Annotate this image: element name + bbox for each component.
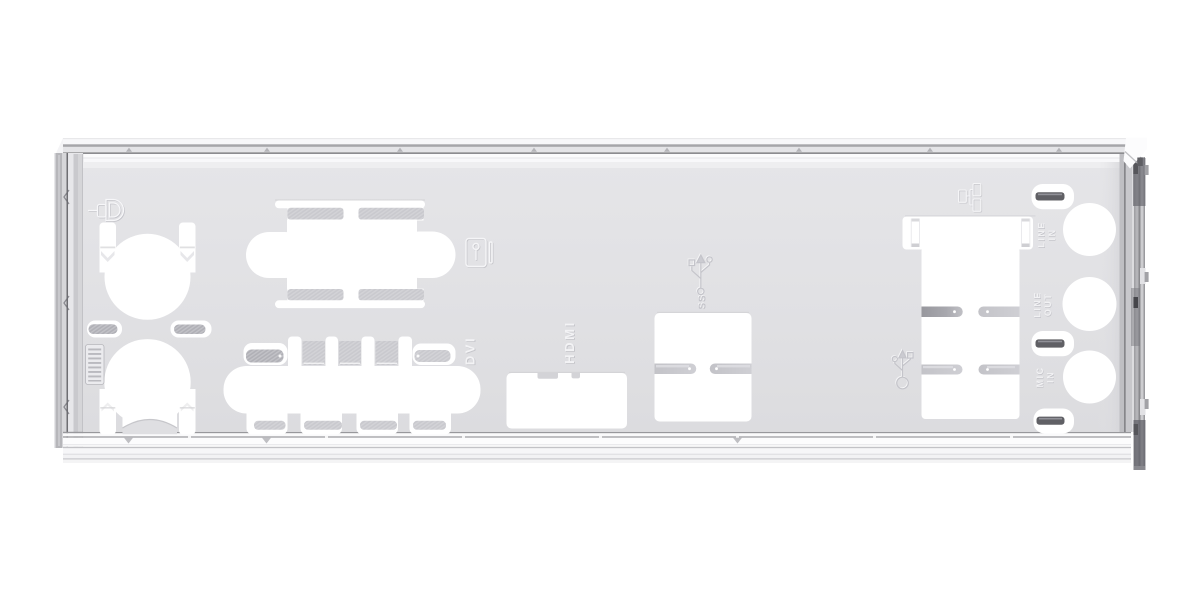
svg-text:LINE: LINE — [1037, 221, 1047, 248]
svg-text:IN: IN — [1046, 371, 1056, 383]
svg-text:IN: IN — [1047, 229, 1057, 241]
svg-text:SS: SS — [698, 295, 709, 310]
svg-text:LINE: LINE — [1033, 291, 1043, 318]
svg-text:OUT: OUT — [1043, 293, 1053, 317]
svg-text:HDMI: HDMI — [562, 320, 577, 364]
svg-text:MIC: MIC — [1035, 367, 1045, 388]
svg-text:DVI: DVI — [463, 336, 478, 365]
